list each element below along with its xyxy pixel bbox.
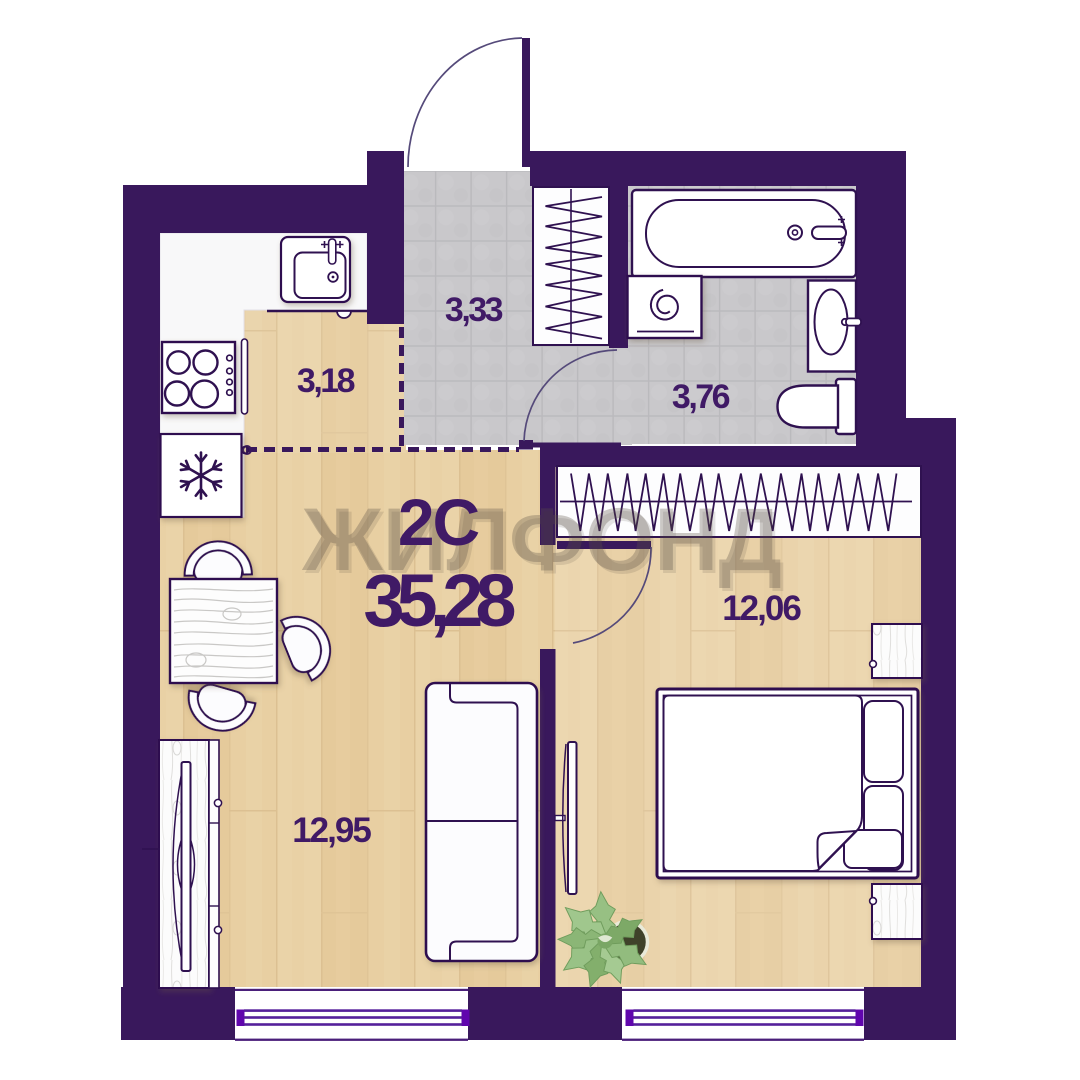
svg-text:2С: 2С <box>398 485 479 559</box>
svg-text:35,28: 35,28 <box>363 559 514 642</box>
svg-text:3,33: 3,33 <box>445 291 503 329</box>
svg-text:3,18: 3,18 <box>297 362 355 400</box>
svg-text:12,95: 12,95 <box>292 811 371 850</box>
svg-text:12,06: 12,06 <box>722 589 801 628</box>
svg-text:3,76: 3,76 <box>672 378 730 416</box>
